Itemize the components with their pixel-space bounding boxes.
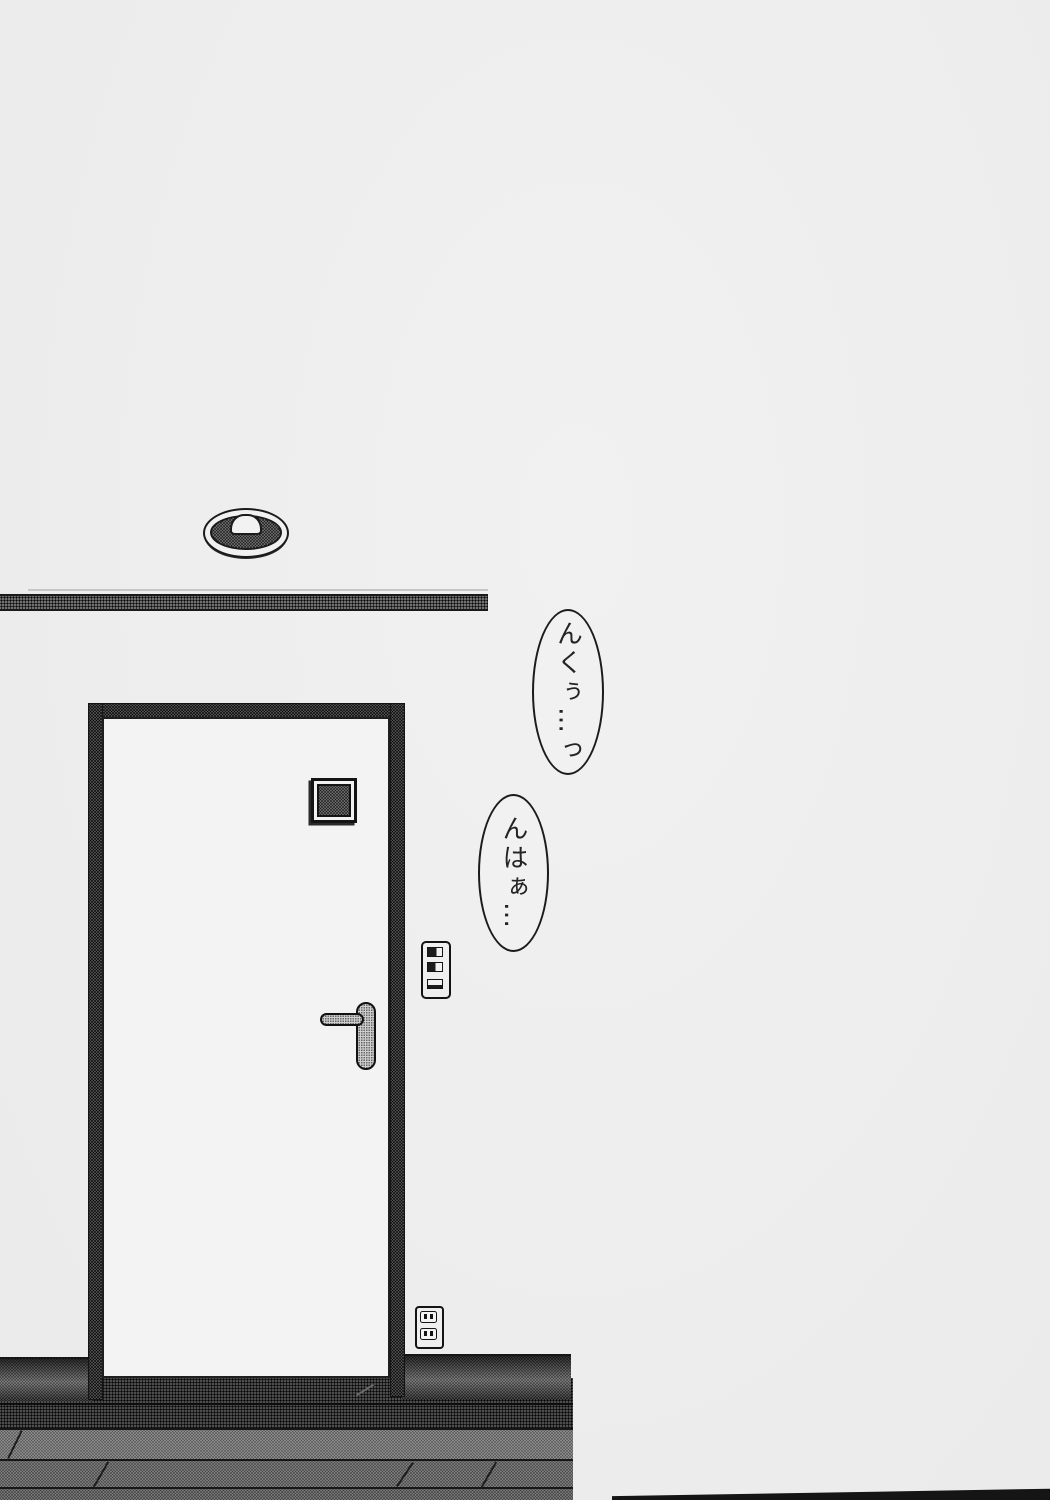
- door-frame-top: [88, 703, 405, 718]
- wood-floor: [0, 1428, 573, 1500]
- peephole-window: [311, 778, 357, 823]
- speech-text-2: んはぁ…: [495, 815, 532, 931]
- baseboard-right: [402, 1354, 571, 1400]
- ceiling-line: [28, 589, 488, 591]
- wall-molding: [0, 594, 488, 611]
- power-outlet: [415, 1306, 444, 1349]
- plank-row: [0, 1430, 573, 1459]
- door-lever-handle: [320, 1013, 364, 1026]
- ceiling-light: [203, 508, 289, 558]
- speech-bubble-2: んはぁ…: [478, 794, 549, 952]
- light-switch-panel: [421, 941, 451, 999]
- switch-rocker: [427, 947, 443, 957]
- outlet-socket: [420, 1328, 437, 1340]
- outlet-slot: [424, 1314, 427, 1319]
- outlet-slot: [430, 1314, 433, 1319]
- threshold-line: [0, 1403, 573, 1405]
- speech-text-1: んくぅ…っ: [550, 620, 587, 765]
- page-edge-shadow: [612, 1488, 1050, 1500]
- manga-page: んくぅ…っ んはぁ…: [0, 0, 1050, 1500]
- switch-rocker: [427, 979, 443, 989]
- outlet-socket: [420, 1311, 437, 1323]
- speech-bubble-1: んくぅ…っ: [532, 609, 604, 775]
- switch-rocker: [427, 962, 443, 972]
- door-frame-right: [390, 703, 405, 1397]
- ceiling-light-bulb: [230, 514, 262, 535]
- outlet-slot: [430, 1331, 433, 1336]
- plank-row: [0, 1489, 573, 1500]
- door-frame-left: [88, 703, 103, 1400]
- outlet-slot: [424, 1331, 427, 1336]
- peephole-glass: [317, 784, 351, 817]
- baseboard-left: [0, 1357, 92, 1401]
